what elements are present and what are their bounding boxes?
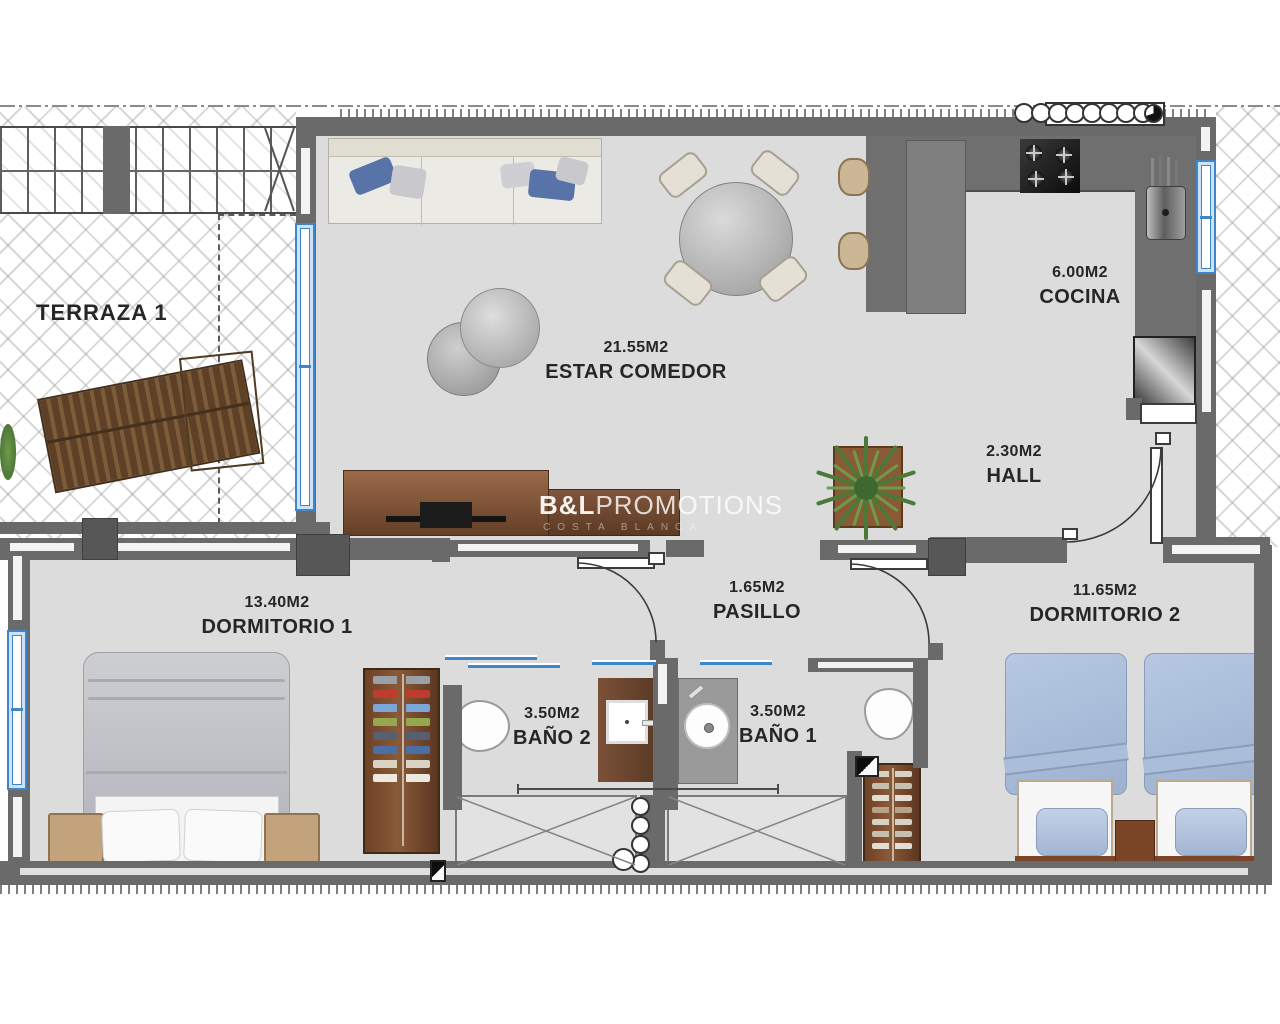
corner-marker-icon: [855, 756, 879, 777]
shower-drain-cap: [704, 723, 714, 733]
cooktop: [1020, 139, 1080, 193]
room-name: BAÑO 2: [513, 725, 591, 751]
room-area: 21.55M2: [545, 338, 727, 359]
room-area: 13.40M2: [201, 593, 352, 614]
dorm1-bano2-wall: [443, 685, 462, 810]
shower-glass-screen: [445, 655, 537, 660]
pillar-pasillo: [928, 538, 966, 576]
exterior-right-paving: [1216, 107, 1280, 547]
wall-cavity: [118, 543, 290, 551]
shower-glass-screen: [592, 660, 656, 665]
dorm1-window: [7, 630, 27, 790]
bathroom-vanity: [598, 678, 656, 782]
plant-pot: [833, 446, 903, 528]
pasillo-west-wall-stub: [650, 640, 665, 660]
pasillo-east-wall-stub: [928, 643, 943, 660]
pillar-terraza: [82, 518, 118, 560]
shower-tray: [667, 795, 847, 867]
room-label-dormitorio-2: 11.65M2 DORMITORIO 2: [1029, 581, 1180, 628]
shower-glass-screen: [468, 663, 560, 668]
bed-single-duvet: [1005, 653, 1127, 795]
door-jamb: [1155, 432, 1171, 445]
room-label-bano-2: 3.50M2 BAÑO 2: [513, 704, 591, 751]
kitchen-counter-left-outer: [866, 136, 906, 312]
door-jamb: [1062, 528, 1078, 540]
coffee-table-large: [460, 288, 540, 368]
room-name: COCINA: [1039, 284, 1120, 310]
utensil-pot: [1146, 186, 1186, 240]
room-label-cocina: 6.00M2 COCINA: [1039, 263, 1120, 310]
room-name: HALL: [986, 463, 1042, 489]
awning-roll-end: [1144, 104, 1163, 123]
brand-subtitle: COSTA BLANCA: [543, 523, 783, 533]
window-mullion: [1200, 216, 1212, 219]
room-name: PASILLO: [713, 599, 801, 625]
toilet-nook-right-wall: [913, 658, 928, 768]
window-mullion: [299, 365, 311, 368]
shower-column: [678, 678, 738, 784]
door-leaf: [850, 558, 928, 570]
pergola-post: [103, 126, 130, 214]
bed-single-duvet: [1144, 653, 1266, 795]
wall-cavity: [1201, 127, 1210, 151]
room-label-hall: 2.30M2 HALL: [986, 442, 1042, 489]
room-area: 6.00M2: [1039, 263, 1120, 284]
terrace-plant: [0, 424, 16, 480]
wardrobe-rail: [402, 674, 404, 846]
sofa-pillow-gray: [389, 165, 427, 200]
shower-drain: [684, 703, 730, 749]
room-label-pasillo: 1.65M2 PASILLO: [713, 578, 801, 625]
room-name: ESTAR COMEDOR: [545, 359, 727, 385]
utensil: [1151, 158, 1154, 188]
shower-glass-screen: [700, 660, 772, 665]
duvet-fold: [88, 697, 285, 700]
shower-handle-icon: [687, 684, 705, 700]
room-label-estar-comedor: 21.55M2 ESTAR COMEDOR: [545, 338, 727, 385]
utensil-pot-knob: [1162, 209, 1169, 216]
duvet-fold: [88, 679, 285, 682]
plumbing-circle: [631, 835, 650, 854]
door-leaf-entrance: [1150, 447, 1163, 544]
room-name: TERRAZA 1: [36, 300, 168, 325]
pillow: [1175, 808, 1247, 856]
burner-icon: [1056, 147, 1072, 163]
brand-rest: PROMOTIONS: [595, 490, 783, 520]
room-label-dormitorio-1: 13.40M2 DORMITORIO 1: [201, 593, 352, 640]
pillow: [101, 809, 181, 864]
door-leaf: [577, 557, 655, 569]
fridge: [1133, 336, 1196, 410]
nightstand: [1115, 820, 1155, 866]
terraza-covered-edge-horizontal: [218, 214, 296, 216]
bar-stool: [838, 158, 870, 196]
brand-bold: B&L: [539, 490, 595, 520]
bottom-wall-hatch: [0, 885, 1272, 894]
window-mullion: [11, 708, 23, 711]
dorm2-right-wall: [1254, 545, 1272, 865]
bar-stool: [838, 232, 870, 270]
room-area: 11.65M2: [1029, 581, 1180, 602]
plumbing-circle: [631, 816, 650, 835]
pillow: [183, 809, 263, 864]
utensil: [1159, 155, 1162, 188]
utensil: [1167, 157, 1170, 188]
terraza-bottom-wall: [0, 522, 330, 534]
shower-tray: [455, 795, 637, 867]
nightstand: [48, 813, 104, 863]
wall-step: [432, 548, 450, 562]
tv-icon: [420, 502, 472, 528]
corner-marker-icon: [430, 860, 446, 882]
sofa-back: [329, 139, 601, 157]
wall-cavity: [818, 662, 913, 668]
room-name: DORMITORIO 2: [1029, 602, 1180, 628]
room-label-bano-1: 3.50M2 BAÑO 1: [739, 702, 817, 749]
pergola-rail: [0, 170, 296, 172]
wall-cavity: [658, 664, 667, 704]
watermark-logo: B&LPROMOTIONS COSTA BLANCA: [531, 476, 781, 548]
burner-icon: [1028, 171, 1044, 187]
pillow: [1036, 808, 1108, 856]
sofa: [328, 138, 602, 224]
burner-icon: [1058, 169, 1074, 185]
wall-cavity: [13, 556, 22, 620]
room-area: 3.50M2: [513, 704, 591, 725]
pergola-grid: [0, 126, 296, 214]
duvet-fold: [86, 771, 287, 774]
room-name: BAÑO 1: [739, 723, 817, 749]
wall-cavity: [301, 148, 310, 214]
room-area: 3.50M2: [739, 702, 817, 723]
wall-cavity: [838, 545, 916, 553]
wall-cavity: [1202, 290, 1211, 412]
floor-plan: TERRAZA 1 21.55M2 ESTAR COMEDOR 6.00M2 C…: [0, 0, 1280, 1024]
wardrobe: [363, 668, 440, 854]
room-label-terraza: TERRAZA 1: [36, 300, 168, 326]
nightstand: [264, 813, 320, 863]
room-area: 2.30M2: [986, 442, 1042, 463]
sink-drain: [625, 720, 629, 724]
kitchen-window: [1196, 160, 1216, 274]
hall-cabinet: [1140, 403, 1197, 424]
wall-cavity: [1172, 545, 1260, 554]
plumbing-circle: [631, 797, 650, 816]
room-area: 1.65M2: [713, 578, 801, 599]
room-name: DORMITORIO 1: [201, 614, 352, 640]
bed-double-duvet: [83, 652, 290, 816]
living-window: [295, 223, 315, 511]
door-jamb: [648, 552, 665, 565]
kitchen-counter-left-inner: [906, 140, 966, 314]
wall-cavity: [10, 543, 74, 551]
pillar-living-corner: [296, 534, 350, 576]
sun-lounger-backrest: [179, 351, 265, 472]
plumbing-circle: [612, 848, 635, 871]
wardrobe: [863, 763, 921, 867]
utensil: [1175, 160, 1178, 188]
wall-cavity: [13, 797, 22, 857]
burner-icon: [1026, 145, 1042, 161]
wardrobe-rail: [892, 768, 894, 862]
duvet-fold: [1003, 743, 1128, 776]
duvet-fold: [1142, 743, 1267, 776]
